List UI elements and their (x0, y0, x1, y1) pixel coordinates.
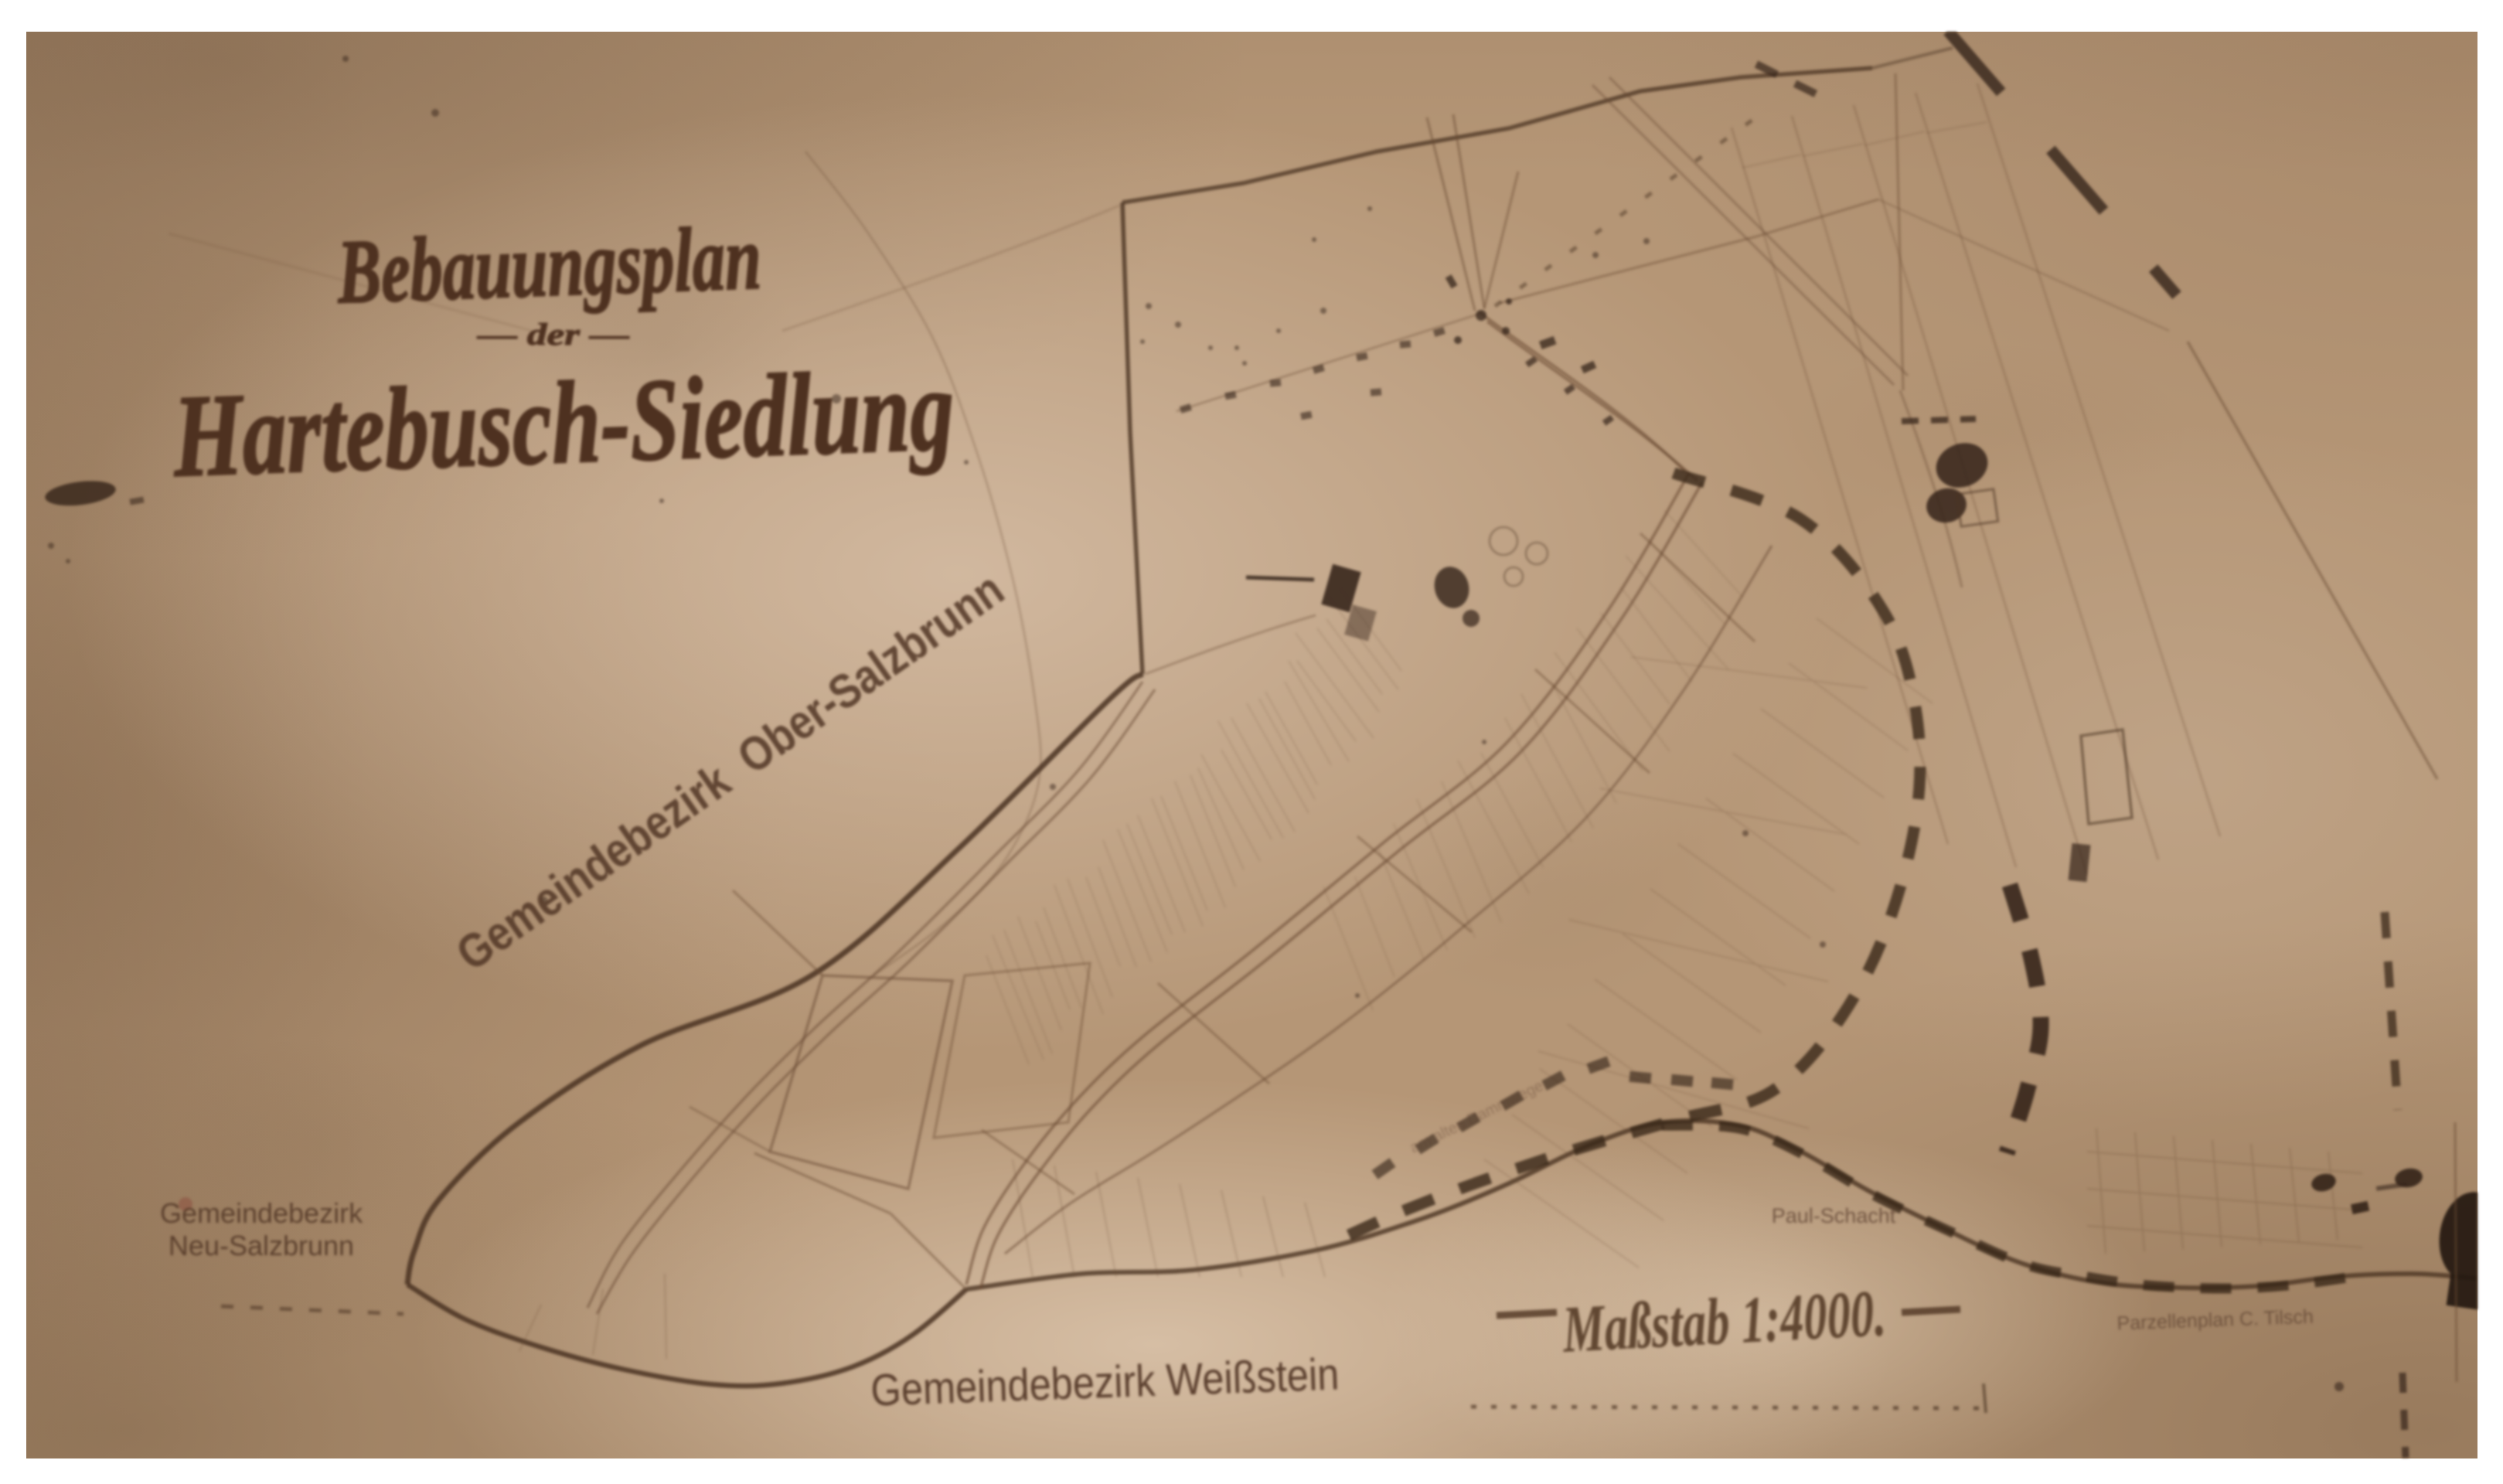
svg-text:Bebauungsplan: Bebauungsplan (335, 207, 763, 323)
svg-text:Gemeindebezirk Ober-Salzbrunn: Gemeindebezirk Ober-Salzbrunn (447, 563, 1013, 982)
svg-text:Maßstab 1:4000.: Maßstab 1:4000. (1560, 1275, 1888, 1367)
svg-text:Hartebusch-Siedlung: Hartebusch-Siedlung (170, 344, 956, 501)
svg-text:Gemeindebezirk: Gemeindebezirk (160, 1197, 363, 1229)
svg-text:Parzellenplan C. Tilsch: Parzellenplan C. Tilsch (2116, 1306, 2314, 1335)
svg-text:Neu-Salzbrunn: Neu-Salzbrunn (169, 1230, 354, 1261)
svg-text:— der —: — der — (477, 317, 629, 352)
svg-text:am alten Dammwege: am alten Dammwege (1408, 1077, 1546, 1157)
svg-text:Paul-Schacht: Paul-Schacht (1772, 1204, 1896, 1227)
svg-text:Gemeindebezirk Weißstein: Gemeindebezirk Weißstein (870, 1349, 1340, 1415)
